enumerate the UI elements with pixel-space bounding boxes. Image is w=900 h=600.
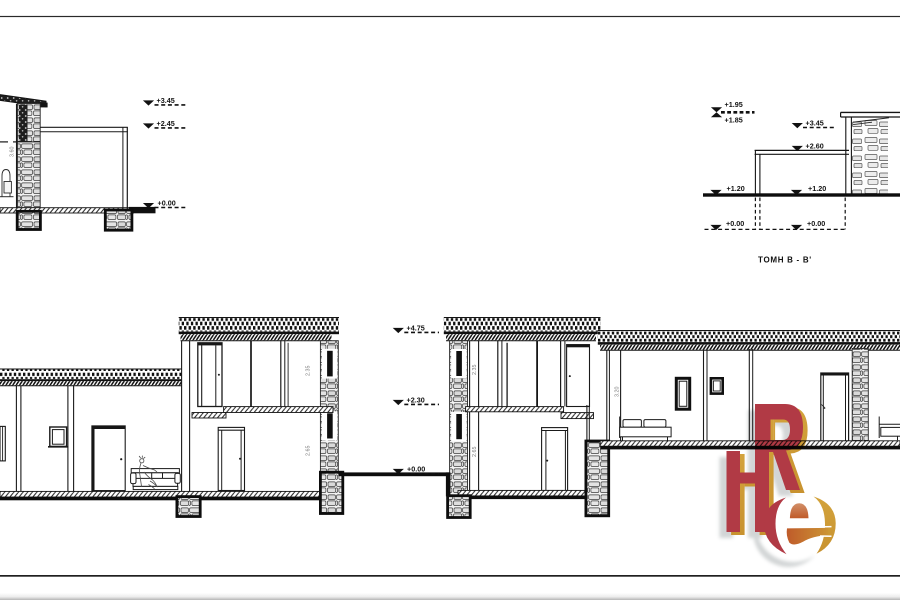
svg-text:+3.45: +3.45 (157, 96, 175, 105)
svg-text:3.20: 3.20 (615, 387, 621, 398)
svg-text:2.65: 2.65 (306, 446, 312, 457)
svg-text:+1.20: +1.20 (727, 184, 745, 193)
svg-text:+0.00: +0.00 (158, 198, 176, 207)
svg-text:+0.00: +0.00 (726, 219, 744, 228)
svg-text:2.35: 2.35 (306, 366, 312, 377)
svg-text:+1.85: +1.85 (725, 116, 743, 125)
svg-text:+3.45: +3.45 (806, 118, 824, 127)
svg-text:+0.00: +0.00 (807, 219, 825, 228)
svg-text:+2.30: +2.30 (407, 395, 425, 404)
svg-text:2.35: 2.35 (472, 365, 478, 376)
svg-text:+4.75: +4.75 (407, 323, 425, 332)
svg-text:3.60: 3.60 (9, 147, 15, 158)
svg-text:+0.00: +0.00 (407, 464, 425, 473)
svg-text:TOMH B - B': TOMH B - B' (758, 256, 812, 265)
svg-text:+2.45: +2.45 (157, 119, 175, 128)
svg-text:+2.60: +2.60 (806, 141, 824, 150)
svg-text:+1.95: +1.95 (725, 100, 743, 109)
svg-text:+1.20: +1.20 (808, 184, 826, 193)
svg-text:2.65: 2.65 (472, 447, 478, 458)
